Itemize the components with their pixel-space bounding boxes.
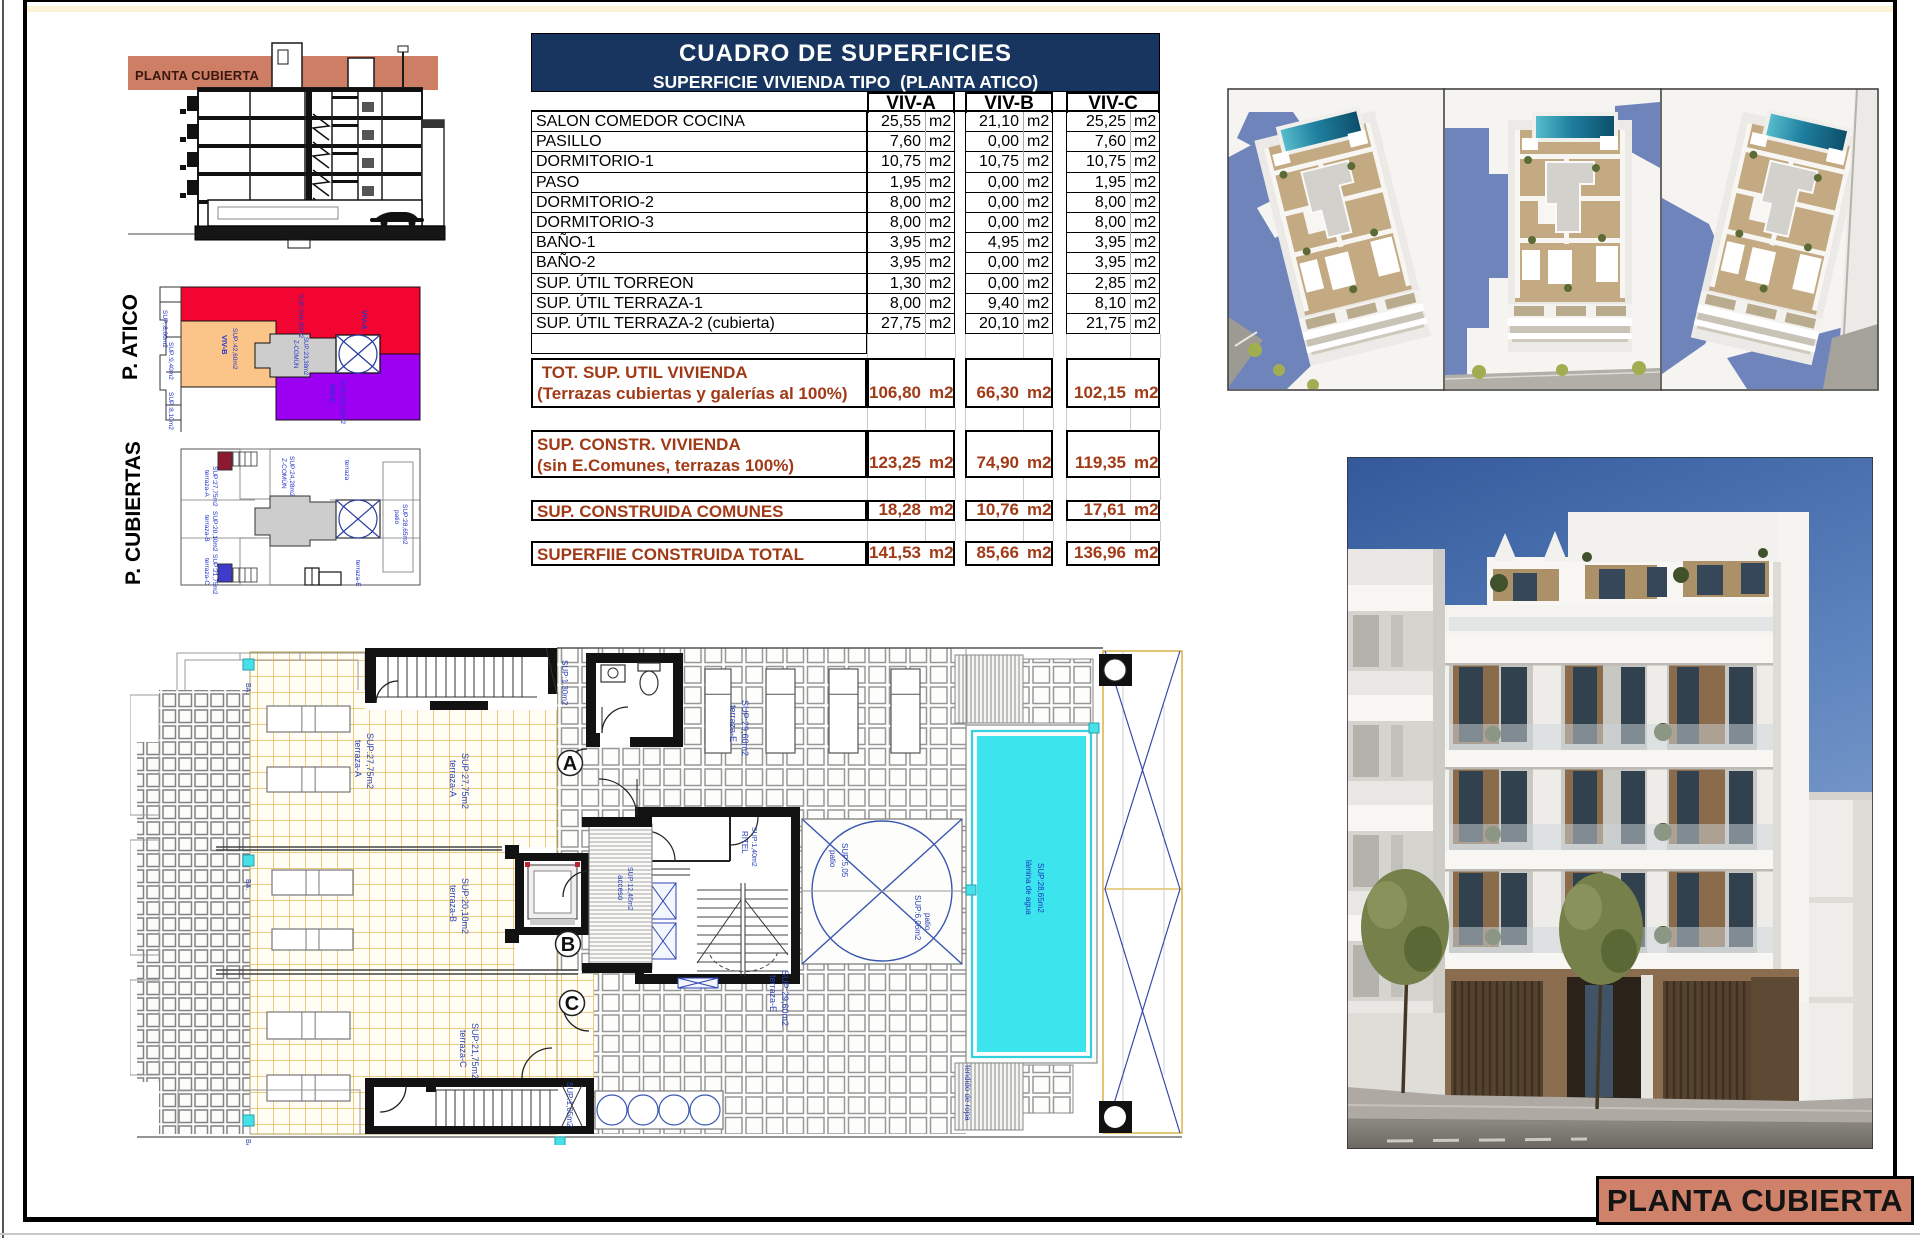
svg-text:SUP:106,80m2: SUP:106,80m2 — [297, 294, 304, 338]
svg-text:terraza-E: terraza-E — [768, 975, 778, 1012]
svg-text:SUP.:42,60m2: SUP.:42,60m2 — [231, 328, 238, 370]
svg-text:terraza-E: terraza-E — [354, 560, 361, 587]
svg-text:SUP:29,60m2: SUP:29,60m2 — [740, 700, 750, 756]
svg-text:BA.: BA. — [244, 879, 251, 890]
svg-text:SUP:28,65m2: SUP:28,65m2 — [1036, 863, 1045, 913]
svg-text:terraza-A: terraza-A — [448, 760, 458, 797]
svg-text:SUP:6,06m2: SUP:6,06m2 — [913, 895, 922, 941]
svg-text:terraza-B: terraza-B — [203, 515, 210, 542]
svg-text:SUP:24,28m2: SUP:24,28m2 — [288, 456, 295, 497]
svg-text:SUP.:8,10m2: SUP.:8,10m2 — [167, 392, 174, 430]
svg-text:SUP:20,10m2: SUP:20,10m2 — [211, 511, 218, 552]
svg-text:SUP:12,46m2: SUP:12,46m2 — [626, 867, 633, 911]
svg-text:terraza-E: terraza-E — [728, 705, 738, 742]
svg-text:SUP:27,75m2: SUP:27,75m2 — [365, 733, 375, 789]
svg-text:SUP:20,10m2: SUP:20,10m2 — [460, 878, 470, 934]
svg-text:SUP:27,75m2: SUP:27,75m2 — [460, 753, 470, 809]
svg-text:SUP.:9,40m2: SUP.:9,40m2 — [167, 342, 174, 380]
svg-text:P. ATICO: P. ATICO — [119, 294, 142, 380]
svg-text:lámina de agua: lámina de agua — [1024, 860, 1033, 915]
svg-text:terraza-B: terraza-B — [448, 885, 458, 922]
svg-text:Z-COMÚN: Z-COMÚN — [280, 458, 289, 489]
svg-text:SUP:27,75m2: SUP:27,75m2 — [211, 466, 218, 507]
svg-text:B: B — [561, 934, 575, 956]
svg-text:terraza: terraza — [343, 460, 350, 481]
svg-text:SUP:21,75m2: SUP:21,75m2 — [470, 1023, 480, 1079]
svg-text:SUP:28,65m2: SUP:28,65m2 — [401, 504, 408, 545]
svg-text:SUP.:8,00m2: SUP.:8,00m2 — [161, 310, 168, 348]
svg-text:SUP:29,60m2: SUP:29,60m2 — [780, 970, 790, 1026]
svg-text:BA.: BA. — [244, 1139, 251, 1145]
svg-text:VIV-A: VIV-A — [360, 310, 369, 330]
svg-text:patio: patio — [393, 510, 400, 524]
svg-text:C: C — [565, 993, 579, 1015]
svg-text:SUP:102,15m2: SUP:102,15m2 — [339, 380, 346, 424]
svg-text:P. CUBIERTAS: P. CUBIERTAS — [122, 441, 145, 585]
svg-text:RITEL: RITEL — [740, 831, 749, 854]
svg-text:A: A — [563, 753, 577, 775]
svg-text:terraza-C: terraza-C — [458, 1030, 468, 1068]
svg-text:SUP:21,75m2: SUP:21,75m2 — [211, 554, 218, 595]
svg-text:SUP:5,05: SUP:5,05 — [840, 843, 849, 878]
svg-text:terraza-A: terraza-A — [353, 740, 363, 777]
svg-text:Z-COMÚN: Z-COMÚN — [292, 340, 299, 368]
svg-text:VIV-C: VIV-C — [328, 384, 337, 404]
svg-text:acceso: acceso — [616, 875, 625, 901]
svg-text:BA.: BA. — [244, 683, 251, 694]
svg-text:SUP:1,30m2: SUP:1,30m2 — [560, 660, 569, 706]
svg-text:patio: patio — [828, 850, 837, 868]
svg-text:VIV-B: VIV-B — [220, 335, 229, 355]
svg-text:PLANTA CUBIERTA: PLANTA CUBIERTA — [135, 68, 259, 83]
svg-text:terraza-A: terraza-A — [203, 470, 210, 497]
svg-text:SUP.:23,38m2: SUP.:23,38m2 — [302, 337, 308, 376]
svg-text:SUP:1,05m2: SUP:1,05m2 — [565, 1082, 574, 1128]
svg-text:terraza-C: terraza-C — [203, 558, 210, 585]
svg-text:patio: patio — [923, 913, 932, 931]
svg-text:SUP:1,40m2: SUP:1,40m2 — [750, 827, 757, 867]
svg-text:tendido de ropa: tendido de ropa — [963, 1065, 972, 1121]
